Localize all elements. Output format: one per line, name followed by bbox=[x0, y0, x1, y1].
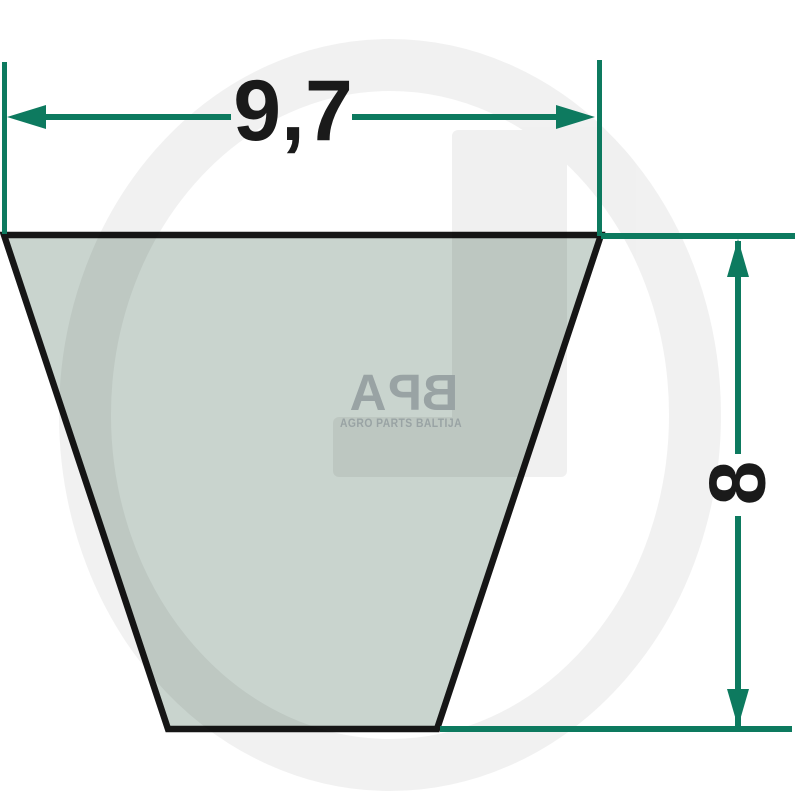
apb-logo-letter-a: A bbox=[350, 364, 387, 421]
arrow-left-icon bbox=[7, 105, 46, 129]
height-value: 8 bbox=[693, 461, 782, 506]
diagram-canvas: A P B AGRO PARTS BALTIJA bbox=[0, 0, 800, 800]
width-value: 9,7 bbox=[233, 63, 353, 159]
belt-dimension-diagram: A P B AGRO PARTS BALTIJA bbox=[0, 0, 800, 800]
watermark-g-terminal bbox=[452, 130, 567, 477]
apb-logo-letter-b: B bbox=[422, 364, 459, 421]
width-extension-line-right bbox=[597, 60, 602, 236]
apb-logo-letter-p: P bbox=[388, 364, 422, 421]
arrow-up-icon bbox=[727, 239, 749, 277]
apb-logo: A P B AGRO PARTS BALTIJA bbox=[340, 364, 462, 430]
width-dim-line-left-segment bbox=[45, 114, 231, 120]
arrow-down-icon bbox=[727, 689, 749, 727]
apb-logo-subtitle: AGRO PARTS BALTIJA bbox=[340, 418, 462, 430]
width-extension-line-left bbox=[2, 62, 7, 234]
height-extension-line-top bbox=[601, 233, 795, 239]
width-dim-line-right-segment bbox=[352, 114, 558, 120]
